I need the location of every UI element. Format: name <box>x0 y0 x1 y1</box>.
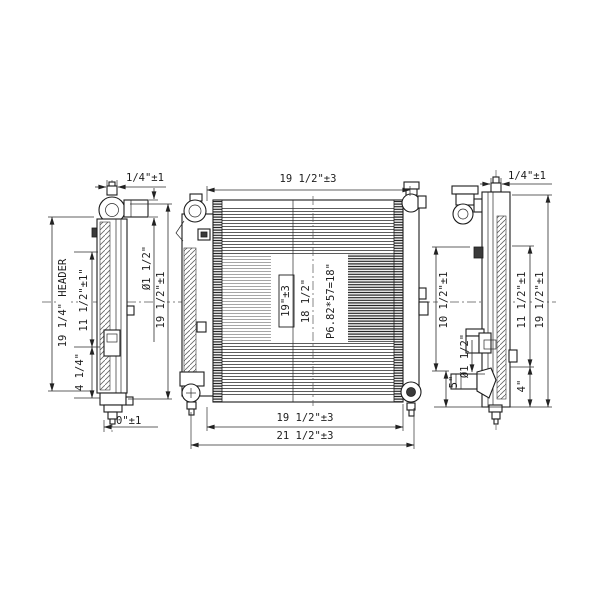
core-fins-light-zone <box>222 254 271 342</box>
dim-core-width-top-group: 19 1/2"±3 <box>207 173 410 201</box>
right-fitting-lower <box>419 302 428 315</box>
dim-core-width-bottom-group: 19 1/2"±3 <box>207 404 403 431</box>
dim-right-overall-height: 19 1/2"±1 <box>534 272 546 329</box>
left-bottom-tab <box>126 397 133 405</box>
dim-left-upper-mount-group: 11 1/2"±1" <box>74 252 100 347</box>
right-view-drain-tip <box>494 419 498 424</box>
core-fins-dense-zone <box>348 254 394 342</box>
dim-left-top-offset-group: 1/4"±1 <box>95 172 166 193</box>
dim-left-upper-mount: 11 1/2"±1" <box>78 268 90 331</box>
dim-right-upper-right-group: 11 1/2"±1 <box>510 246 534 367</box>
left-header-strip <box>213 200 222 402</box>
right-filler-neck-body <box>456 194 474 205</box>
left-inlet-pipe <box>124 200 148 217</box>
front-right-tank <box>401 182 428 416</box>
dim-right-pipe-diameter: Ø1 1/2" <box>459 334 471 378</box>
dim-tube-length: 18 1/2" <box>300 279 312 323</box>
right-upper-tab <box>474 247 483 258</box>
dim-fin-pitch: P6.82*57=18" <box>325 263 337 339</box>
left-mid-tab <box>127 306 134 315</box>
right-filler-top <box>404 182 419 189</box>
right-top-stub <box>491 183 501 192</box>
dim-right-top-offset-group: 1/4"±1 <box>480 170 552 190</box>
dim-left-header-height: 19 1/4" HEADER <box>57 258 69 347</box>
left-drain-tip <box>189 409 194 415</box>
right-filler-elbow-pipe <box>453 204 473 224</box>
dim-left-lower-mount-group: 4 1/4" <box>74 347 100 398</box>
left-bottom-block-2 <box>104 405 122 412</box>
right-filler-flange <box>418 196 426 208</box>
dim-left-overall-height: 19 1/2"±1 <box>155 272 167 329</box>
left-top-stub <box>107 186 117 195</box>
right-bottom-boss-inner <box>407 388 416 397</box>
dim-right-upper-left: 10 1/2"±1 <box>438 272 450 329</box>
right-side-tab <box>509 350 517 362</box>
right-header-strip <box>394 200 403 402</box>
right-drain-tip <box>409 410 414 416</box>
left-side-view: 1/4"±1 Ø1 1/2" 19 1/2"±1 19 1/4" HEADER <box>48 172 172 432</box>
right-view-drain-block <box>489 405 502 412</box>
right-filler-elbow <box>402 194 420 212</box>
radiator-drawing-svg: 19"±3 18 1/2" P6.82*57=18" 19 1/2"±3 19 … <box>0 0 613 613</box>
dim-right-upper-right: 11 1/2"±1 <box>516 272 528 329</box>
dim-left-overall-height-group: 19 1/2"±1 <box>128 204 172 399</box>
left-mid-fitting <box>197 322 206 332</box>
technical-drawing-page: 19"±3 18 1/2" P6.82*57=18" 19 1/2"±3 19 … <box>0 0 613 613</box>
dim-overall-width: 21 1/2"±3 <box>277 430 334 442</box>
dim-core-height-boxed: 19"±3 <box>280 285 292 317</box>
left-view-drain-tip <box>110 419 115 424</box>
dim-right-lower-left-group: 5" <box>446 371 460 407</box>
filler-cap <box>184 200 206 222</box>
front-left-tank <box>176 194 213 415</box>
right-view-drain-stub <box>492 412 500 419</box>
dim-core-width-top: 19 1/2"±3 <box>280 173 337 185</box>
right-top-tip <box>493 177 499 183</box>
upper-fitting-detail <box>201 232 207 237</box>
dim-core-width-bottom: 19 1/2"±3 <box>277 412 334 424</box>
dim-left-pipe-diameter: Ø1 1/2" <box>141 246 153 290</box>
left-drain-stub <box>187 402 196 409</box>
right-tank-body <box>403 206 419 396</box>
left-body-hatch <box>100 222 110 390</box>
dim-right-lower-right-group: 4" <box>516 367 530 407</box>
dim-left-lower-mount: 4 1/4" <box>74 353 86 391</box>
left-bottom-block <box>100 393 126 405</box>
right-side-view: 1/4"±1 10 1/2"±1 5" Ø1 1/2" 11 1/2"±1 <box>432 170 552 430</box>
dim-left-drain-offset: 0"±1 <box>116 415 141 427</box>
right-fitting-upper <box>419 288 426 299</box>
dim-right-lower-right: 4" <box>516 380 528 393</box>
right-mid-bracket-side <box>479 333 491 353</box>
dim-right-top-offset: 1/4"±1 <box>508 170 546 182</box>
left-tank-hatch <box>184 248 196 376</box>
right-body-hatch <box>497 216 506 399</box>
dim-left-top-offset: 1/4"±1 <box>126 172 164 184</box>
right-filler-cap <box>452 186 478 194</box>
front-view: 19"±3 18 1/2" P6.82*57=18" 19 1/2"±3 19 … <box>176 173 428 449</box>
